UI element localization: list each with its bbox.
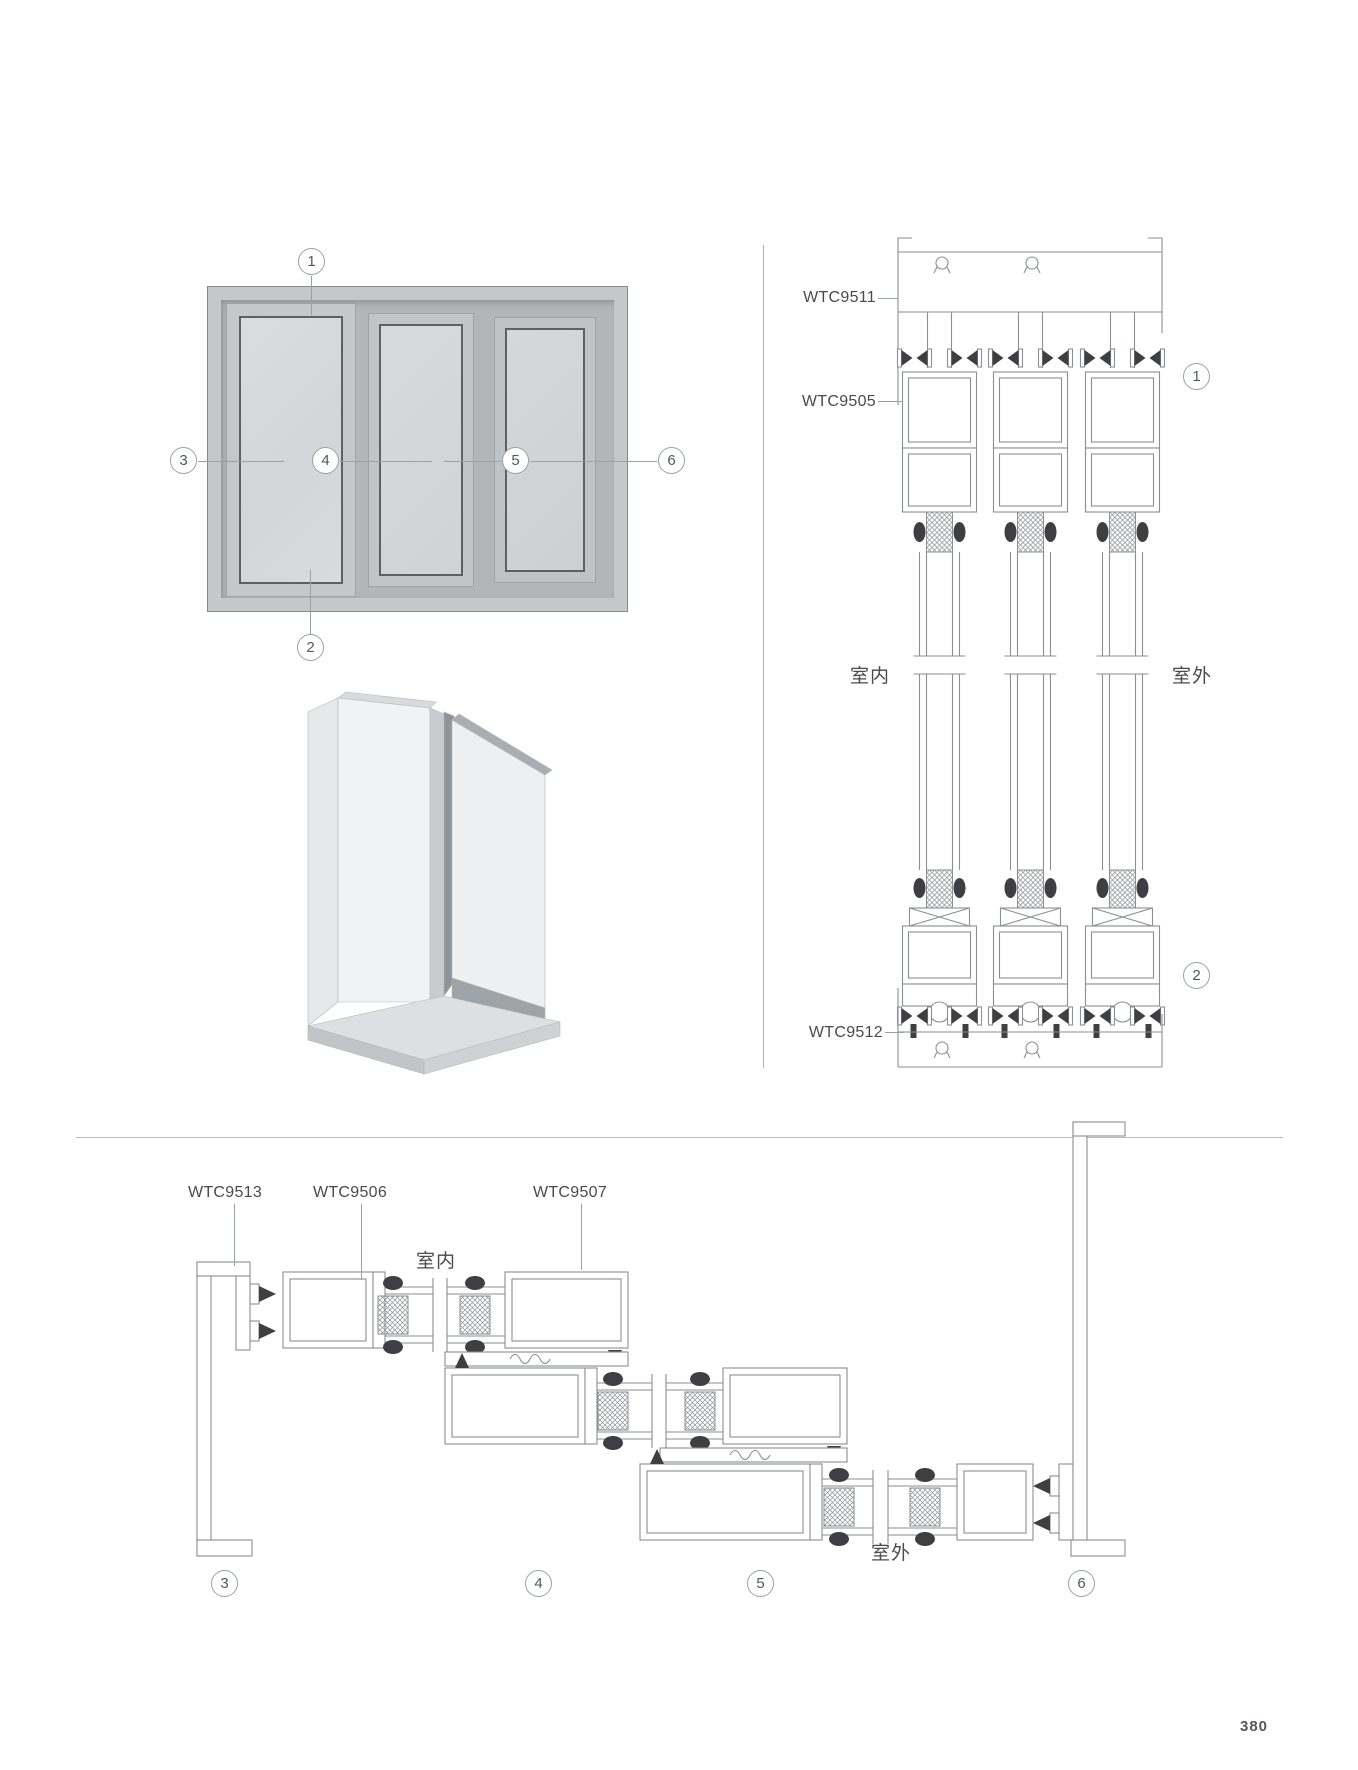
callout-section-6: 6 [1068, 1570, 1095, 1597]
callout-section-3: 3 [211, 1570, 238, 1597]
leader-line [310, 570, 311, 634]
callout-section-1: 1 [1183, 363, 1210, 390]
label-wtc9505: WTC9505 [800, 393, 876, 411]
callout-4: 4 [312, 447, 339, 474]
leader-line [885, 1032, 904, 1033]
outdoor-label-vertical: 室外 [1172, 661, 1212, 688]
leader-line [198, 461, 284, 462]
callout-3: 3 [170, 447, 197, 474]
indoor-label-horizontal: 室内 [416, 1246, 456, 1273]
leader-line [878, 298, 898, 299]
sash-tier-1 [283, 1272, 628, 1366]
leader-line [444, 461, 501, 462]
label-wtc9507: WTC9507 [530, 1184, 610, 1202]
sash-tier-2 [445, 1353, 847, 1462]
leader-line [581, 1204, 582, 1270]
callout-5: 5 [502, 447, 529, 474]
leader-line [530, 461, 593, 462]
vertical-section-drawing [898, 238, 1165, 1067]
sash-panel-middle [368, 313, 474, 587]
sash-panel-left [226, 303, 356, 597]
outdoor-label-horizontal: 室外 [871, 1538, 911, 1565]
leader-line [361, 1204, 362, 1280]
label-wtc9506: WTC9506 [310, 1184, 390, 1202]
technical-drawings-layer [0, 0, 1358, 1770]
label-wtc9511: WTC9511 [800, 289, 876, 307]
left-jamb-profile [197, 1262, 276, 1556]
callout-1: 1 [298, 248, 325, 275]
window-elevation [207, 286, 628, 612]
catalog-page: { "page": { "number": "380" }, "colors":… [0, 0, 1358, 1770]
divider-vertical [763, 245, 764, 1068]
leader-line [594, 461, 657, 462]
callout-2: 2 [297, 634, 324, 661]
right-jamb-profile [1033, 1122, 1125, 1556]
callout-6: 6 [658, 447, 685, 474]
label-wtc9513: WTC9513 [185, 1184, 265, 1202]
page-number: 380 [1240, 1718, 1268, 1735]
indoor-label-vertical: 室内 [850, 661, 890, 688]
corner-render-3d [308, 692, 560, 1074]
callout-section-2: 2 [1183, 962, 1210, 989]
leader-line [311, 276, 312, 315]
callout-section-5: 5 [747, 1570, 774, 1597]
glass-middle [379, 324, 463, 576]
sash-tier-3 [640, 1449, 1033, 1546]
callout-section-4: 4 [525, 1570, 552, 1597]
head-track-profile [898, 238, 1162, 405]
sill-track-profile [898, 988, 1162, 1067]
divider-horizontal [76, 1137, 1283, 1138]
leader-line [234, 1204, 235, 1266]
leader-line [340, 461, 432, 462]
leader-line [878, 401, 903, 402]
label-wtc9512: WTC9512 [803, 1024, 883, 1042]
